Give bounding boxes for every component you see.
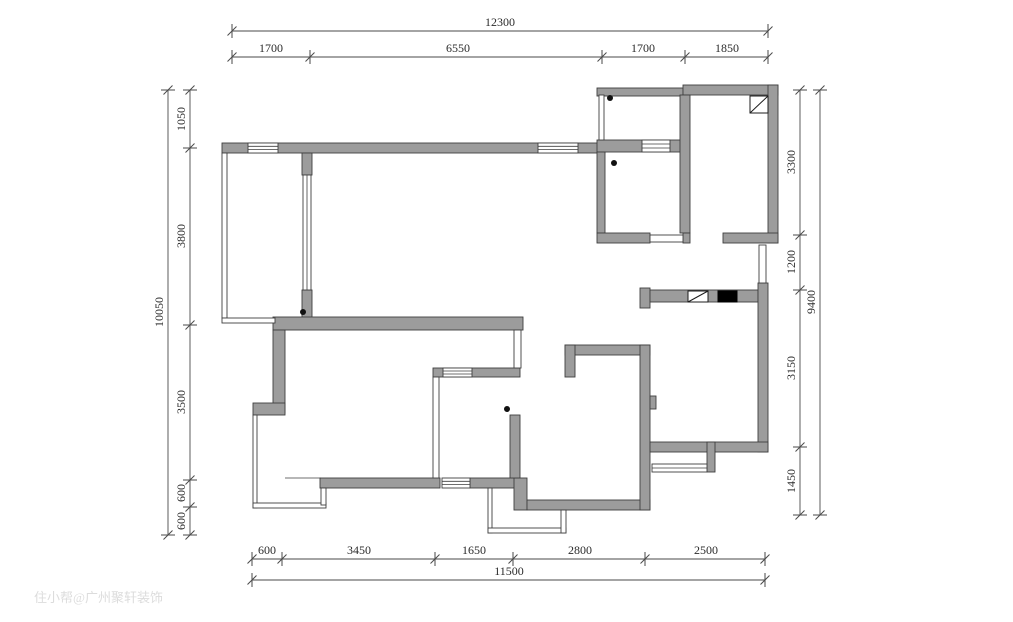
window-icon <box>538 143 578 153</box>
dim-top-seg: 1700 <box>631 41 655 55</box>
dim-left-total: 10050 <box>152 297 166 327</box>
dim-top-seg: 6550 <box>446 41 470 55</box>
dim-bottom-seg: 600 <box>258 543 276 557</box>
floor-plan-page: 12300 1700 6550 1700 1850 600 3450 1650 … <box>0 0 1013 622</box>
dim-bottom-seg: 2800 <box>568 543 592 557</box>
dim-right-total: 9400 <box>804 290 818 314</box>
window-icon <box>652 464 707 472</box>
window-icon <box>642 140 670 152</box>
dimension-lines <box>161 24 827 587</box>
dim-right-seg: 1450 <box>784 469 798 493</box>
dim-right-seg: 1200 <box>784 250 798 274</box>
dim-bottom-seg: 1650 <box>462 543 486 557</box>
dim-right-seg: 3300 <box>784 150 798 174</box>
shaft-symbols-group <box>688 96 768 302</box>
window-symbols-group <box>248 95 707 488</box>
flue-shaft-icon <box>688 291 708 302</box>
flue-shaft-icon <box>750 96 768 113</box>
door-pivot-dot <box>300 309 306 315</box>
dim-right-seg: 3150 <box>784 356 798 380</box>
duct-riser-icon <box>718 291 737 302</box>
dim-top-seg: 1700 <box>259 41 283 55</box>
dim-left-seg: 600 <box>174 484 188 502</box>
door-pivot-dot <box>607 95 613 101</box>
dim-bottom-seg: 2500 <box>694 543 718 557</box>
floor-plan-drawing: 12300 1700 6550 1700 1850 600 3450 1650 … <box>0 0 1013 622</box>
dim-top-total: 12300 <box>485 15 515 29</box>
dim-left-seg: 1050 <box>174 107 188 131</box>
dim-top-seg: 1850 <box>715 41 739 55</box>
watermark-text: 住小帮@广州聚轩装饰 <box>34 590 163 605</box>
window-icon <box>303 175 311 290</box>
door-pivot-dot <box>611 160 617 166</box>
dim-left-seg: 3500 <box>174 390 188 414</box>
dim-bottom-seg: 3450 <box>347 543 371 557</box>
dim-left-seg: 3800 <box>174 224 188 248</box>
dim-bottom-total: 11500 <box>494 564 524 578</box>
window-icon <box>248 143 278 153</box>
window-icon <box>442 478 470 488</box>
window-icon <box>443 368 472 377</box>
window-icon <box>599 95 604 140</box>
door-pivot-dot <box>504 406 510 412</box>
dim-left-seg: 600 <box>174 512 188 530</box>
